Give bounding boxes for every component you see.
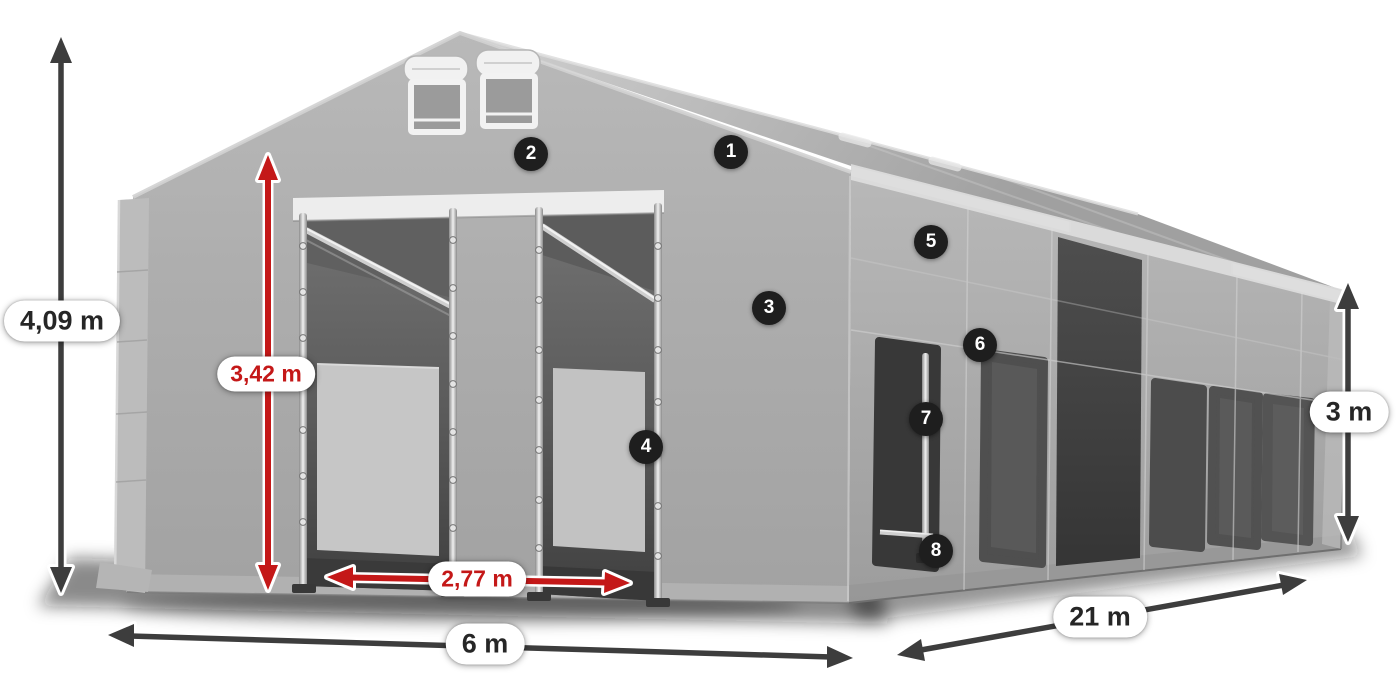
interior-window-1 bbox=[317, 364, 439, 556]
part-badge-7: 7 bbox=[909, 402, 943, 436]
front-left-corner bbox=[96, 198, 152, 593]
product-dimension-diagram: 4,09 m 3,42 m 2,77 m 6 m 21 m 3 m 1 2 3 … bbox=[0, 0, 1400, 700]
interior-window-2 bbox=[553, 368, 645, 552]
part-badge-2: 2 bbox=[514, 137, 548, 171]
dimension-label-front-width: 6 m bbox=[446, 624, 525, 665]
dimension-label-total-height: 4,09 m bbox=[4, 301, 120, 342]
part-badge-1: 1 bbox=[714, 135, 748, 169]
part-badge-4: 4 bbox=[629, 430, 663, 464]
dimension-label-side-length: 21 m bbox=[1053, 597, 1147, 638]
dimension-label-entrance-height: 3,42 m bbox=[217, 357, 315, 392]
gable-vent-right bbox=[476, 50, 540, 126]
tent-illustration bbox=[0, 0, 1400, 700]
part-badge-5: 5 bbox=[914, 225, 948, 259]
part-badge-8: 8 bbox=[919, 534, 953, 568]
front-entrance-2 bbox=[536, 200, 662, 604]
gable-vent-left bbox=[404, 56, 468, 132]
part-badge-3: 3 bbox=[752, 291, 786, 325]
dimension-label-entrance-width: 2,77 m bbox=[428, 562, 526, 597]
front-entrance-1 bbox=[300, 205, 456, 595]
tent bbox=[96, 33, 1349, 607]
sliding-gate-opening bbox=[1056, 237, 1142, 566]
dimension-label-side-height: 3 m bbox=[1310, 392, 1389, 433]
part-badge-6: 6 bbox=[963, 328, 997, 362]
